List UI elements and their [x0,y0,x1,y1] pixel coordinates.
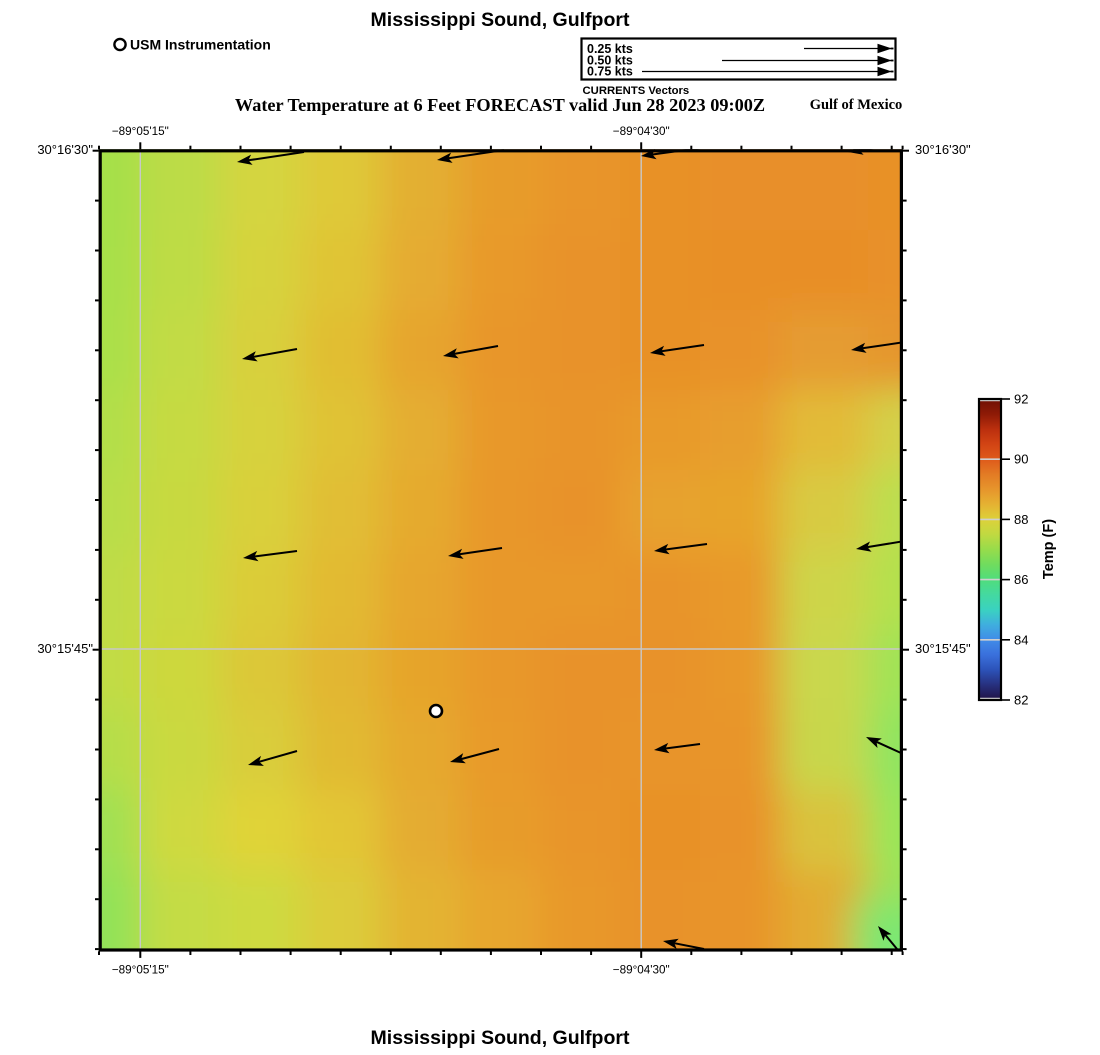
svg-text:−89°05'15": −89°05'15" [112,963,169,976]
svg-text:−89°05'15": −89°05'15" [112,125,169,138]
svg-text:30°16'30": 30°16'30" [37,142,93,157]
svg-text:USM Instrumentation: USM Instrumentation [130,37,271,53]
svg-text:92: 92 [1014,392,1028,407]
svg-text:Mississippi Sound, Gulfport: Mississippi Sound, Gulfport [371,1027,630,1049]
svg-text:Temp (F): Temp (F) [1041,519,1057,579]
svg-text:30°15'45": 30°15'45" [37,641,93,656]
svg-text:−89°04'30": −89°04'30" [613,963,670,976]
svg-text:Gulf of Mexico: Gulf of Mexico [810,97,903,113]
svg-text:0.75 kts: 0.75 kts [587,65,633,79]
svg-text:−89°04'30": −89°04'30" [613,125,670,138]
svg-text:86: 86 [1014,572,1028,587]
svg-text:30°16'30": 30°16'30" [915,142,971,157]
svg-text:Mississippi Sound, Gulfport: Mississippi Sound, Gulfport [371,9,630,31]
svg-text:82: 82 [1014,693,1028,708]
svg-text:88: 88 [1014,512,1028,527]
svg-text:Water Temperature at 6 Feet FO: Water Temperature at 6 Feet FORECAST val… [235,95,765,115]
svg-text:90: 90 [1014,452,1028,467]
svg-text:84: 84 [1014,632,1028,647]
svg-text:30°15'45": 30°15'45" [915,641,971,656]
